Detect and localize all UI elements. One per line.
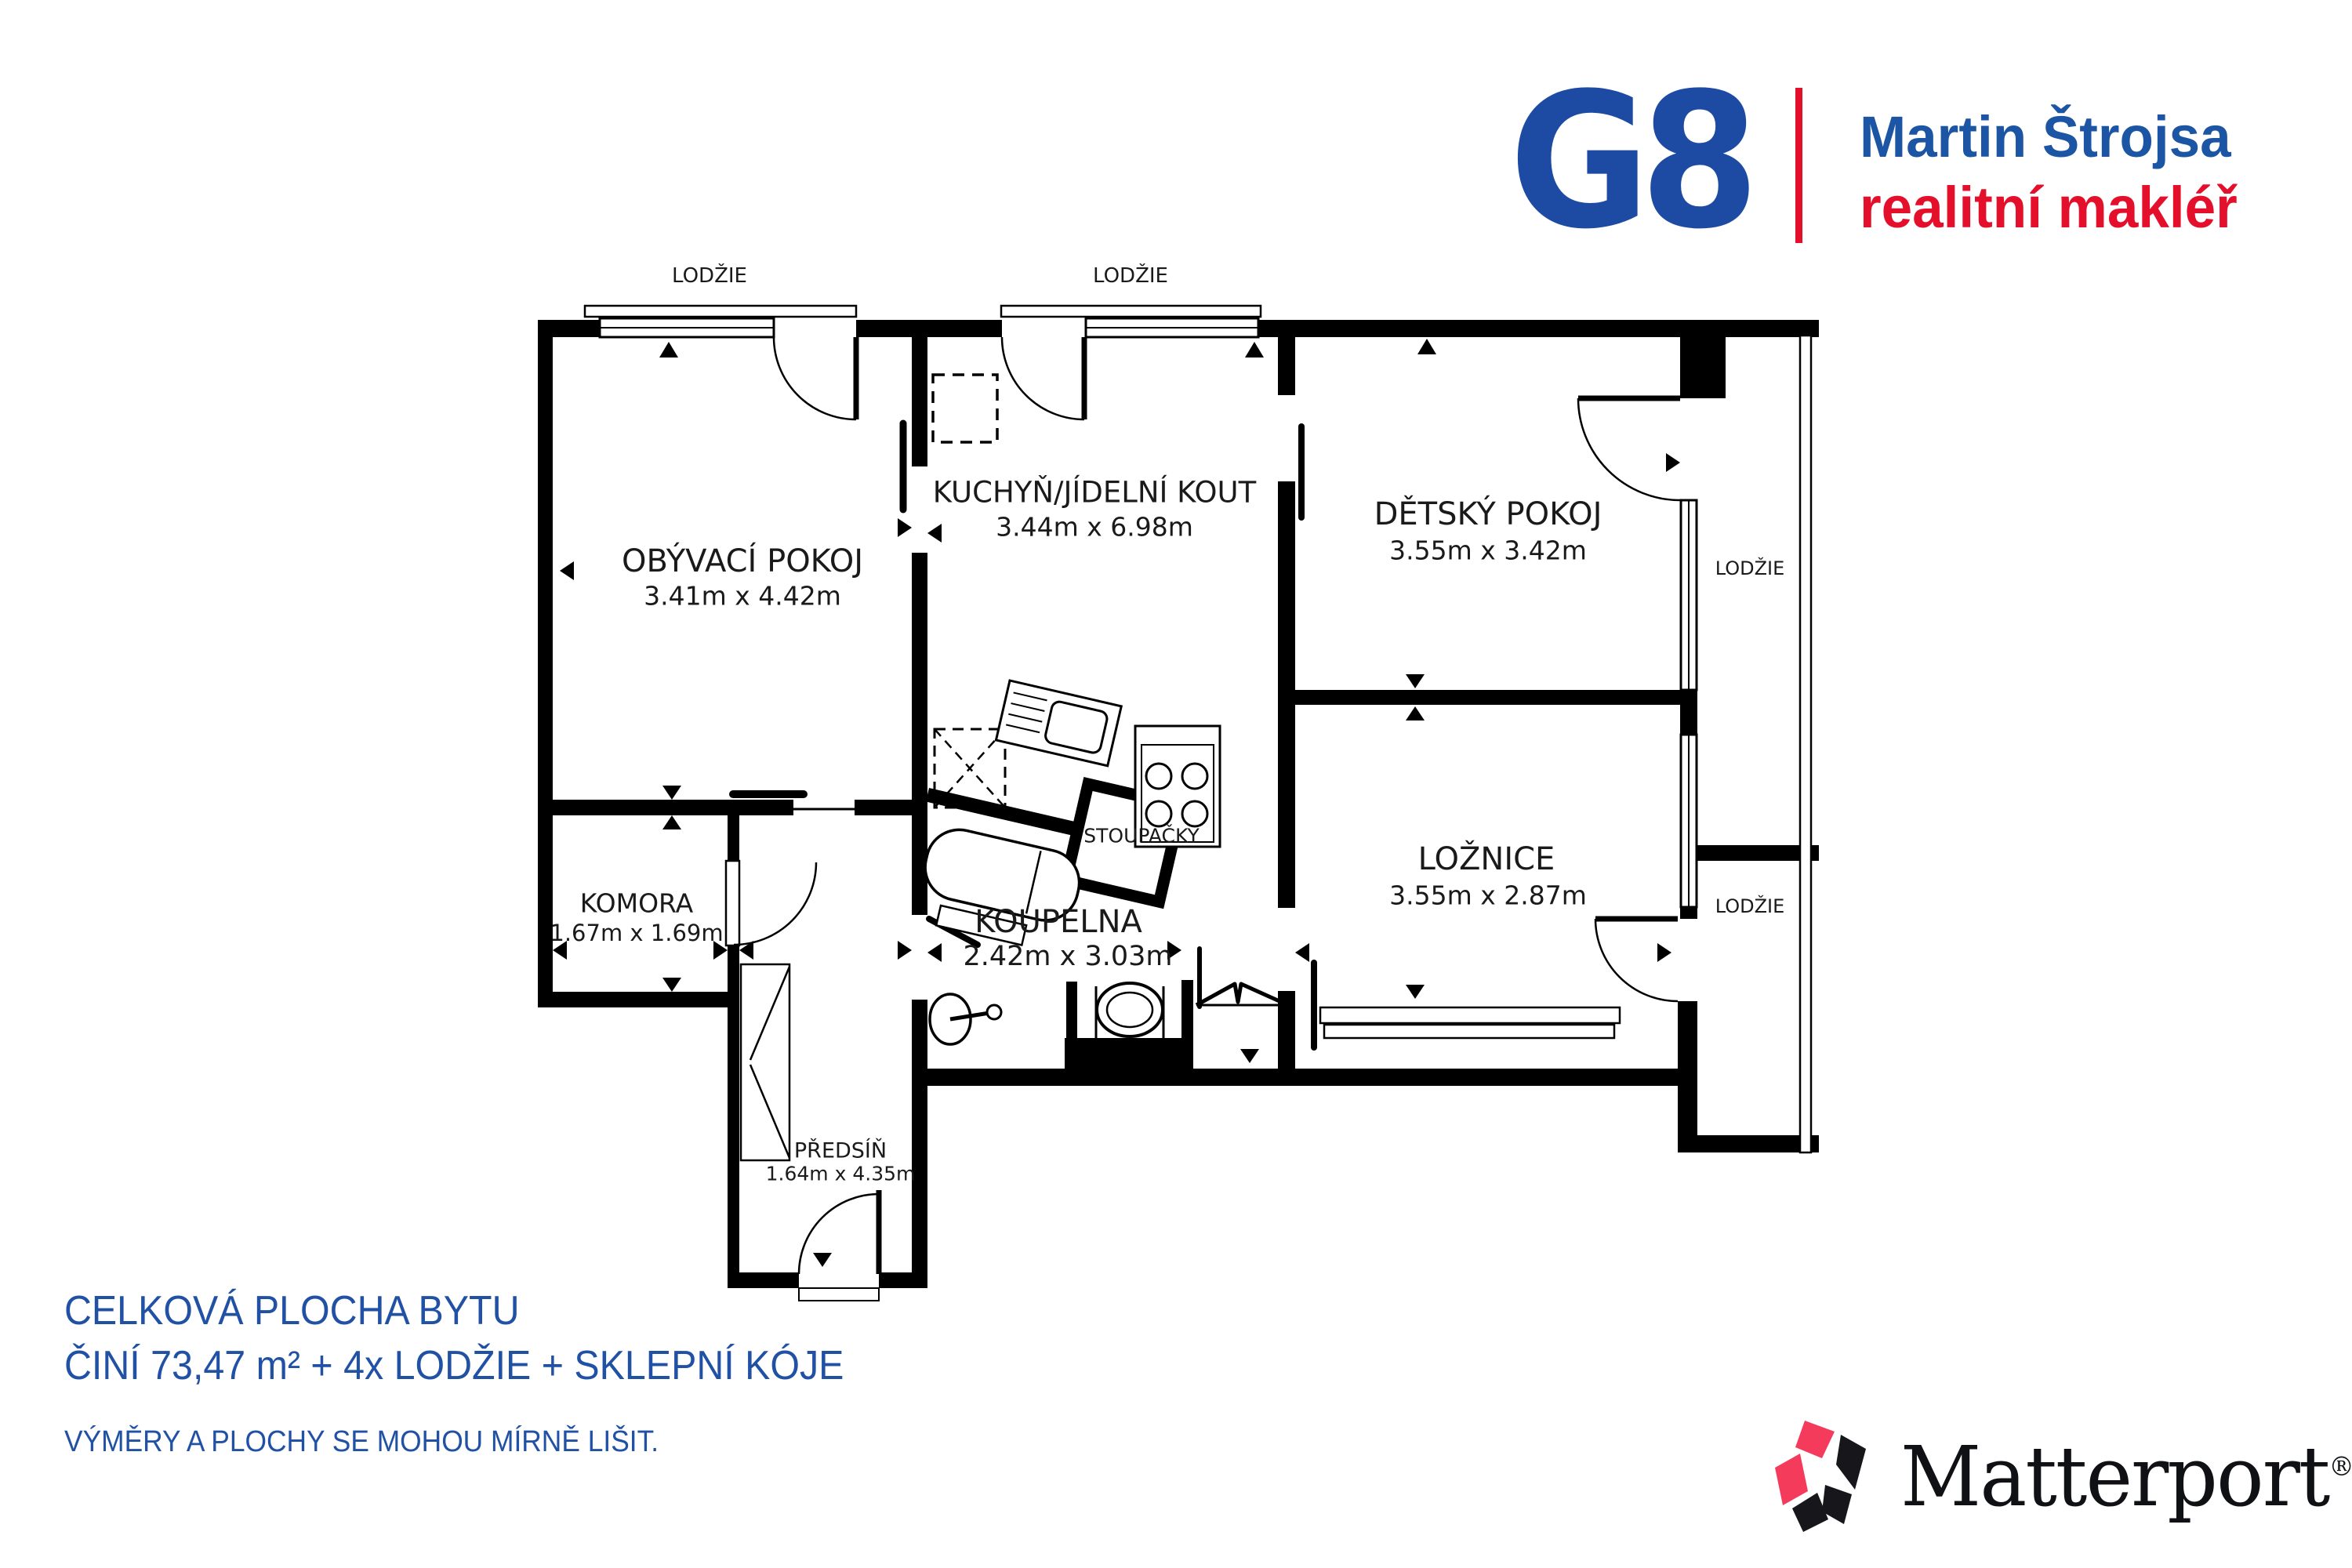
room-label-komora: KOMORA [580, 888, 693, 919]
matterport-brand: Matterport® [1900, 1428, 2352, 1525]
matterport-icon [1773, 1419, 1878, 1532]
room-label-loznice: LOŽNICE [1418, 841, 1555, 877]
kitchen-fixtures [933, 375, 1220, 847]
balcony-label-top-right: LODŽIE [1093, 264, 1168, 288]
room-dims-detsky-pokoj: 3.55m x 3.42m [1389, 535, 1587, 566]
room-dims-komora: 1.67m x 1.69m [550, 920, 723, 946]
room-dims-predsin: 1.64m x 4.35m [766, 1163, 916, 1185]
matterport-brand-text: Matterport [1900, 1428, 2329, 1525]
room-label-detsky-pokoj: DĚTSKÝ POKOJ [1374, 496, 1602, 532]
room-label-obyvaci-pokoj: OBÝVACÍ POKOJ [622, 543, 863, 579]
room-dims-kuchyn-jidelni-kout: 3.44m x 6.98m [996, 512, 1193, 543]
room-dims-koupelna: 2.42m x 3.03m [963, 941, 1172, 972]
room-label-stoupacky: STOUPAČKY [1083, 825, 1200, 848]
summary-line-2: ČINÍ 73,47 m² + 4x LODŽIE + SKLEPNÍ KÓJE [64, 1342, 844, 1389]
room-label-koupelna: KOUPELNA [975, 904, 1142, 940]
kitchen-sink [996, 681, 1121, 766]
page-canvas: G8 Martin Štrojsa realitní makléř [0, 0, 2352, 1568]
summary-line-1: CELKOVÁ PLOCHA BYTU [64, 1287, 520, 1334]
registered-trademark-symbol: ® [2329, 1451, 2352, 1483]
toilet [1096, 983, 1163, 1038]
hall-wardrobe [741, 964, 789, 1160]
balcony-label-right-upper: LODŽIE [1715, 557, 1785, 579]
balcony-label-top-left: LODŽIE [672, 264, 747, 288]
bedroom-wardrobe [1320, 1007, 1620, 1023]
room-dims-obyvaci-pokoj: 3.41m x 4.42m [644, 581, 841, 612]
room-label-predsin: PŘEDSÍŇ [794, 1139, 887, 1163]
balcony-label-right-lower: LODŽIE [1715, 895, 1785, 917]
room-dims-loznice: 3.55m x 2.87m [1389, 880, 1587, 911]
summary-disclaimer: VÝMĚRY A PLOCHY SE MOHOU MÍRNĚ LIŠIT. [64, 1425, 659, 1459]
room-label-kuchyn-jidelni-kout: KUCHYŇ/JÍDELNÍ KOUT [933, 476, 1256, 510]
